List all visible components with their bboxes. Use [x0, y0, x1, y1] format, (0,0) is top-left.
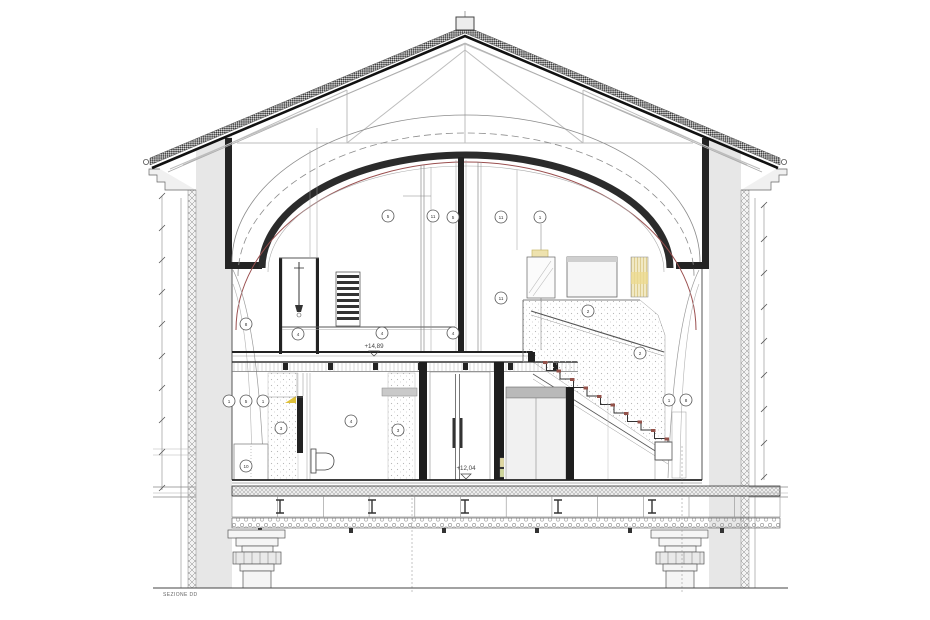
material-tag: 11: [495, 292, 507, 304]
material-tag: 3: [392, 424, 404, 436]
svg-text:3: 3: [280, 426, 283, 431]
material-tag: 1: [223, 395, 235, 407]
svg-text:2: 2: [587, 309, 590, 314]
material-tag: 2: [634, 347, 646, 359]
svg-text:4: 4: [381, 331, 384, 336]
svg-text:11: 11: [499, 215, 504, 220]
material-tag: 5: [447, 211, 459, 223]
level-value-upper: +14,89: [364, 343, 384, 350]
material-tag: 1: [663, 394, 675, 406]
door-handle: [453, 418, 456, 448]
right-gutter: [781, 159, 786, 164]
wall-section: [419, 362, 427, 480]
section-drawing: +14,89 +12,04 5 11 5 11 1 11 8 4 4 4 2 2…: [0, 0, 930, 620]
material-tag: 4: [376, 327, 388, 339]
material-tag: 3: [275, 422, 287, 434]
svg-text:5: 5: [245, 399, 248, 404]
understair-door: [506, 387, 566, 480]
svg-text:11: 11: [431, 214, 436, 219]
svg-text:1: 1: [539, 215, 542, 220]
material-tag: 5: [382, 210, 394, 222]
material-tag: 2: [582, 305, 594, 317]
material-tag: 1: [257, 395, 269, 407]
material-tag: 8: [680, 394, 692, 406]
truss: [170, 44, 760, 169]
deck-slab-hatch: [232, 486, 780, 496]
level-marker-upper: +14,89: [364, 343, 384, 356]
stair-newel-block: [655, 442, 672, 460]
svg-text:1: 1: [262, 399, 265, 404]
material-tag: 11: [427, 210, 439, 222]
material-tag: 4: [292, 328, 304, 340]
left-gutter: [143, 159, 148, 164]
radiator: [631, 257, 648, 297]
level-value-lower: +12,04: [456, 465, 476, 472]
svg-text:4: 4: [452, 331, 455, 336]
toilet: [311, 449, 334, 473]
material-tag: 4: [345, 415, 357, 427]
material-tag: 5: [240, 395, 252, 407]
level-triangle-icon: [461, 474, 471, 479]
louvre-grille: [336, 272, 360, 326]
chimney: [456, 17, 474, 30]
corbel-column-right: [651, 530, 708, 588]
material-tag: 11: [495, 211, 507, 223]
svg-text:5: 5: [387, 214, 390, 219]
material-tag: 4: [447, 327, 459, 339]
svg-text:3: 3: [397, 428, 400, 433]
dimension-line-left: [159, 193, 165, 491]
material-tag: 1: [534, 211, 546, 223]
shelf-lintel: [382, 388, 417, 396]
partition-walls-upper: [403, 157, 481, 352]
svg-text:1: 1: [228, 399, 231, 404]
svg-text:4: 4: [297, 332, 300, 337]
wall-mirror: [527, 250, 555, 298]
wall-board: [567, 257, 617, 297]
left-wall-insulation-hatch: [188, 190, 196, 588]
svg-text:10: 10: [243, 464, 249, 469]
steel-i-beams: [276, 500, 656, 513]
svg-text:11: 11: [499, 296, 504, 301]
material-tag: 8: [240, 318, 252, 330]
wardrobe-doors: [430, 372, 490, 480]
section-title: SEZIONE DD: [163, 592, 198, 598]
deck-bay-lines: [232, 496, 780, 517]
insulation-band: [232, 518, 780, 528]
door-section: [297, 396, 303, 453]
left-cornice: [149, 169, 196, 190]
svg-text:4: 4: [350, 419, 353, 424]
svg-text:2: 2: [639, 351, 642, 356]
door-handle: [460, 418, 463, 448]
svg-text:8: 8: [685, 398, 688, 403]
svg-text:5: 5: [452, 215, 455, 220]
wall-section: [566, 387, 574, 480]
material-tag: 10: [240, 460, 252, 472]
right-cornice: [741, 169, 787, 190]
drawing-canvas: +14,89 +12,04 5 11 5 11 1 11 8 4 4 4 2 2…: [0, 0, 930, 620]
corbel-column-left: [228, 530, 285, 588]
center-wall-section: [458, 157, 464, 352]
svg-text:8: 8: [245, 322, 248, 327]
svg-text:1: 1: [668, 398, 671, 403]
dimension-line-right: [761, 202, 767, 480]
